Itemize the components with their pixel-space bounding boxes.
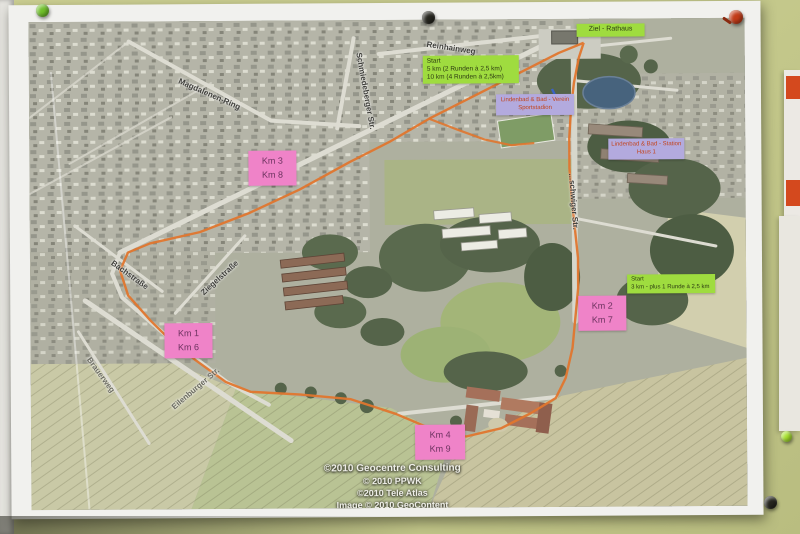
aerial-map-graphic	[29, 18, 748, 510]
pushpin-black-top-center	[422, 11, 435, 24]
facility-label-sport: Lindenbad & Bad - Verein Sportstadion	[496, 94, 574, 115]
pushpin-black-bottom-right	[764, 496, 777, 509]
imagery-attribution: ©2010 Geocentre Consulting © 2010 PPWK ©…	[287, 462, 497, 510]
km-marker-3-8: Km 3 Km 8	[248, 151, 296, 186]
ziel-label-text: Ziel - Rathaus	[581, 25, 641, 34]
pond	[583, 76, 635, 108]
attribution-line: Image © 2010 GeoContent	[287, 498, 497, 510]
neighbour-poster-right	[784, 70, 800, 216]
km-top: Km 1	[166, 327, 210, 341]
facility-sport-line1: Lindenbad & Bad - Verein	[498, 96, 572, 105]
start-label-3km: Start 3 km - plus 1 Runde à 2,5 km	[627, 274, 715, 294]
km-marker-1-6: Km 1 Km 6	[164, 323, 212, 358]
pinboard-photo: Reinhainweg Magdalenen-Ring Schmiedeberg…	[0, 0, 800, 534]
start-label-line2: 10 km (4 Runden à 2,5km)	[427, 73, 515, 82]
map-photo: Reinhainweg Magdalenen-Ring Schmiedeberg…	[29, 18, 748, 510]
poster-orange-stripe	[786, 76, 800, 99]
neighbour-sheet-right	[779, 216, 800, 431]
start-label-main: Start 5 km (2 Runden à 2,5 km) 10 km (4 …	[423, 55, 519, 84]
pushpin-lime-right	[781, 431, 792, 442]
km-top: Km 3	[250, 155, 294, 169]
km-bottom: Km 6	[166, 341, 210, 355]
km-marker-4-9: Km 4 Km 9	[415, 425, 465, 460]
km-bottom: Km 9	[417, 442, 463, 456]
poster-orange-stripe	[786, 180, 800, 206]
facility-sport-line2: Sportstadion	[498, 104, 572, 113]
facility-station-line1: Lindenbad & Bad - Station	[610, 140, 682, 149]
paper-shadow	[0, 516, 420, 534]
km-top: Km 4	[417, 429, 463, 443]
start3-label-line1: 3 km - plus 1 Runde à 2,5 km	[631, 284, 711, 292]
pushpin-green-top-left	[36, 4, 49, 17]
km-top: Km 2	[580, 300, 624, 314]
km-marker-2-7: Km 2 Km 7	[578, 296, 626, 331]
km-bottom: Km 7	[580, 313, 624, 327]
map-sheet: Reinhainweg Magdalenen-Ring Schmiedeberg…	[8, 1, 763, 520]
facility-station-line2: Haus 1	[610, 149, 682, 158]
facility-label-station: Lindenbad & Bad - Station Haus 1	[608, 138, 684, 159]
pushpin-red-top-right	[729, 10, 743, 24]
km-bottom: Km 8	[250, 168, 294, 182]
ziel-label: Ziel - Rathaus	[577, 23, 645, 36]
